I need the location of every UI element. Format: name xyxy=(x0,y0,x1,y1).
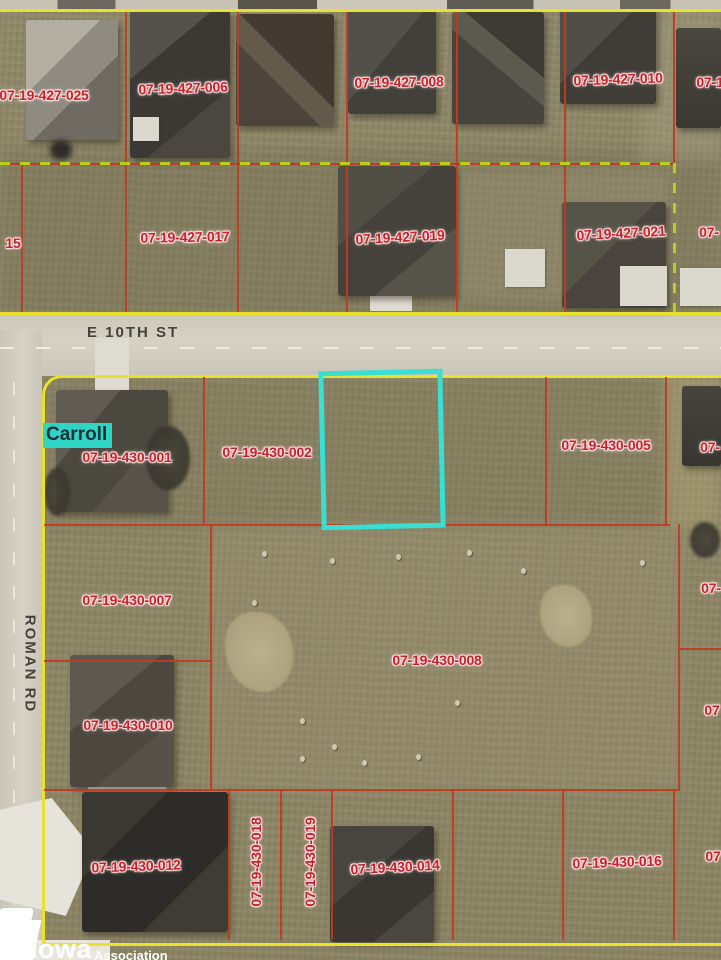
parcel-boundary-line xyxy=(21,164,23,312)
parcel-boundary-line xyxy=(44,660,212,662)
patio xyxy=(133,117,159,141)
parcel-boundary-line xyxy=(452,790,454,940)
parcel-label: 07-19-427-008 xyxy=(354,73,444,91)
house xyxy=(560,6,656,104)
parcel-boundary-line xyxy=(665,377,667,525)
parcel-label: 07-19-430-001 xyxy=(82,449,171,465)
driveway xyxy=(370,294,412,311)
parcel-boundary-line xyxy=(673,790,675,940)
parcel-boundary-line xyxy=(678,524,680,790)
parcel-label: 07-19-427-010 xyxy=(573,69,663,88)
section-line-dashed xyxy=(0,162,675,165)
house xyxy=(236,14,334,126)
parcel-boundary-line xyxy=(44,789,680,791)
parcel-label: 15 xyxy=(5,235,20,251)
parcel-boundary-line xyxy=(545,377,547,525)
parcel-label: 07-19-430-016 xyxy=(572,852,662,871)
parcel-label: 07-19-430-005 xyxy=(561,437,650,453)
parcel-label: 07-19-430-007 xyxy=(82,592,171,608)
parcel-boundary-line xyxy=(228,790,230,940)
selected-parcel-highlight[interactable] xyxy=(318,369,445,531)
trampoline xyxy=(50,140,72,160)
parcel-boundary-line xyxy=(280,790,282,940)
parcel-label: 07 xyxy=(704,702,719,718)
parcel-label: 07-19-430-012 xyxy=(91,856,181,875)
parcel-boundary-line xyxy=(331,790,333,940)
garage-pad xyxy=(680,268,721,306)
house xyxy=(348,6,436,114)
watermark-brand: Iowa xyxy=(30,934,92,960)
parcel-label: 07-19-427-017 xyxy=(140,228,230,246)
parcel-boundary-line xyxy=(203,377,205,525)
section-boundary-line xyxy=(0,9,721,12)
parcel-boundary-line xyxy=(673,12,675,164)
parcel-label: 07- xyxy=(699,224,719,240)
city-label: Carroll xyxy=(43,423,112,448)
parcel-label: 07-19-430-010 xyxy=(83,717,172,733)
parcel-label: 07- xyxy=(700,439,720,455)
parcel-map-viewport: 07-19-427-02507-19-427-00607-19-427-0080… xyxy=(0,0,721,960)
parcel-label: 07-19-430-002 xyxy=(222,444,311,460)
house xyxy=(452,12,544,124)
parcel-boundary-line xyxy=(562,790,564,940)
shed xyxy=(505,249,545,287)
street-label-roman-rd: ROMAN RD xyxy=(22,615,39,714)
parcel-label: 07-1 xyxy=(696,74,721,90)
garage-pad xyxy=(620,266,667,306)
house xyxy=(26,20,118,140)
parcel-label: 07-19-430-019 xyxy=(302,817,318,906)
parcel-label: 07-19-430-008 xyxy=(392,652,481,668)
parcel-boundary-line xyxy=(678,648,721,650)
parcel-label: 07- xyxy=(701,580,721,596)
section-line-dashed xyxy=(673,163,676,313)
parcel-label: 07-19-427-006 xyxy=(138,78,228,97)
parcel-label: 07 xyxy=(705,848,720,864)
street-label-e-10th-st: E 10TH ST xyxy=(87,324,179,341)
parcel-boundary-line xyxy=(210,524,212,790)
parcel-label: 07-19-430-018 xyxy=(248,817,264,906)
parcel-label: 07-19-427-025 xyxy=(0,87,89,103)
section-boundary-line xyxy=(0,312,721,315)
watermark-tagline: Association of xyxy=(94,948,168,960)
